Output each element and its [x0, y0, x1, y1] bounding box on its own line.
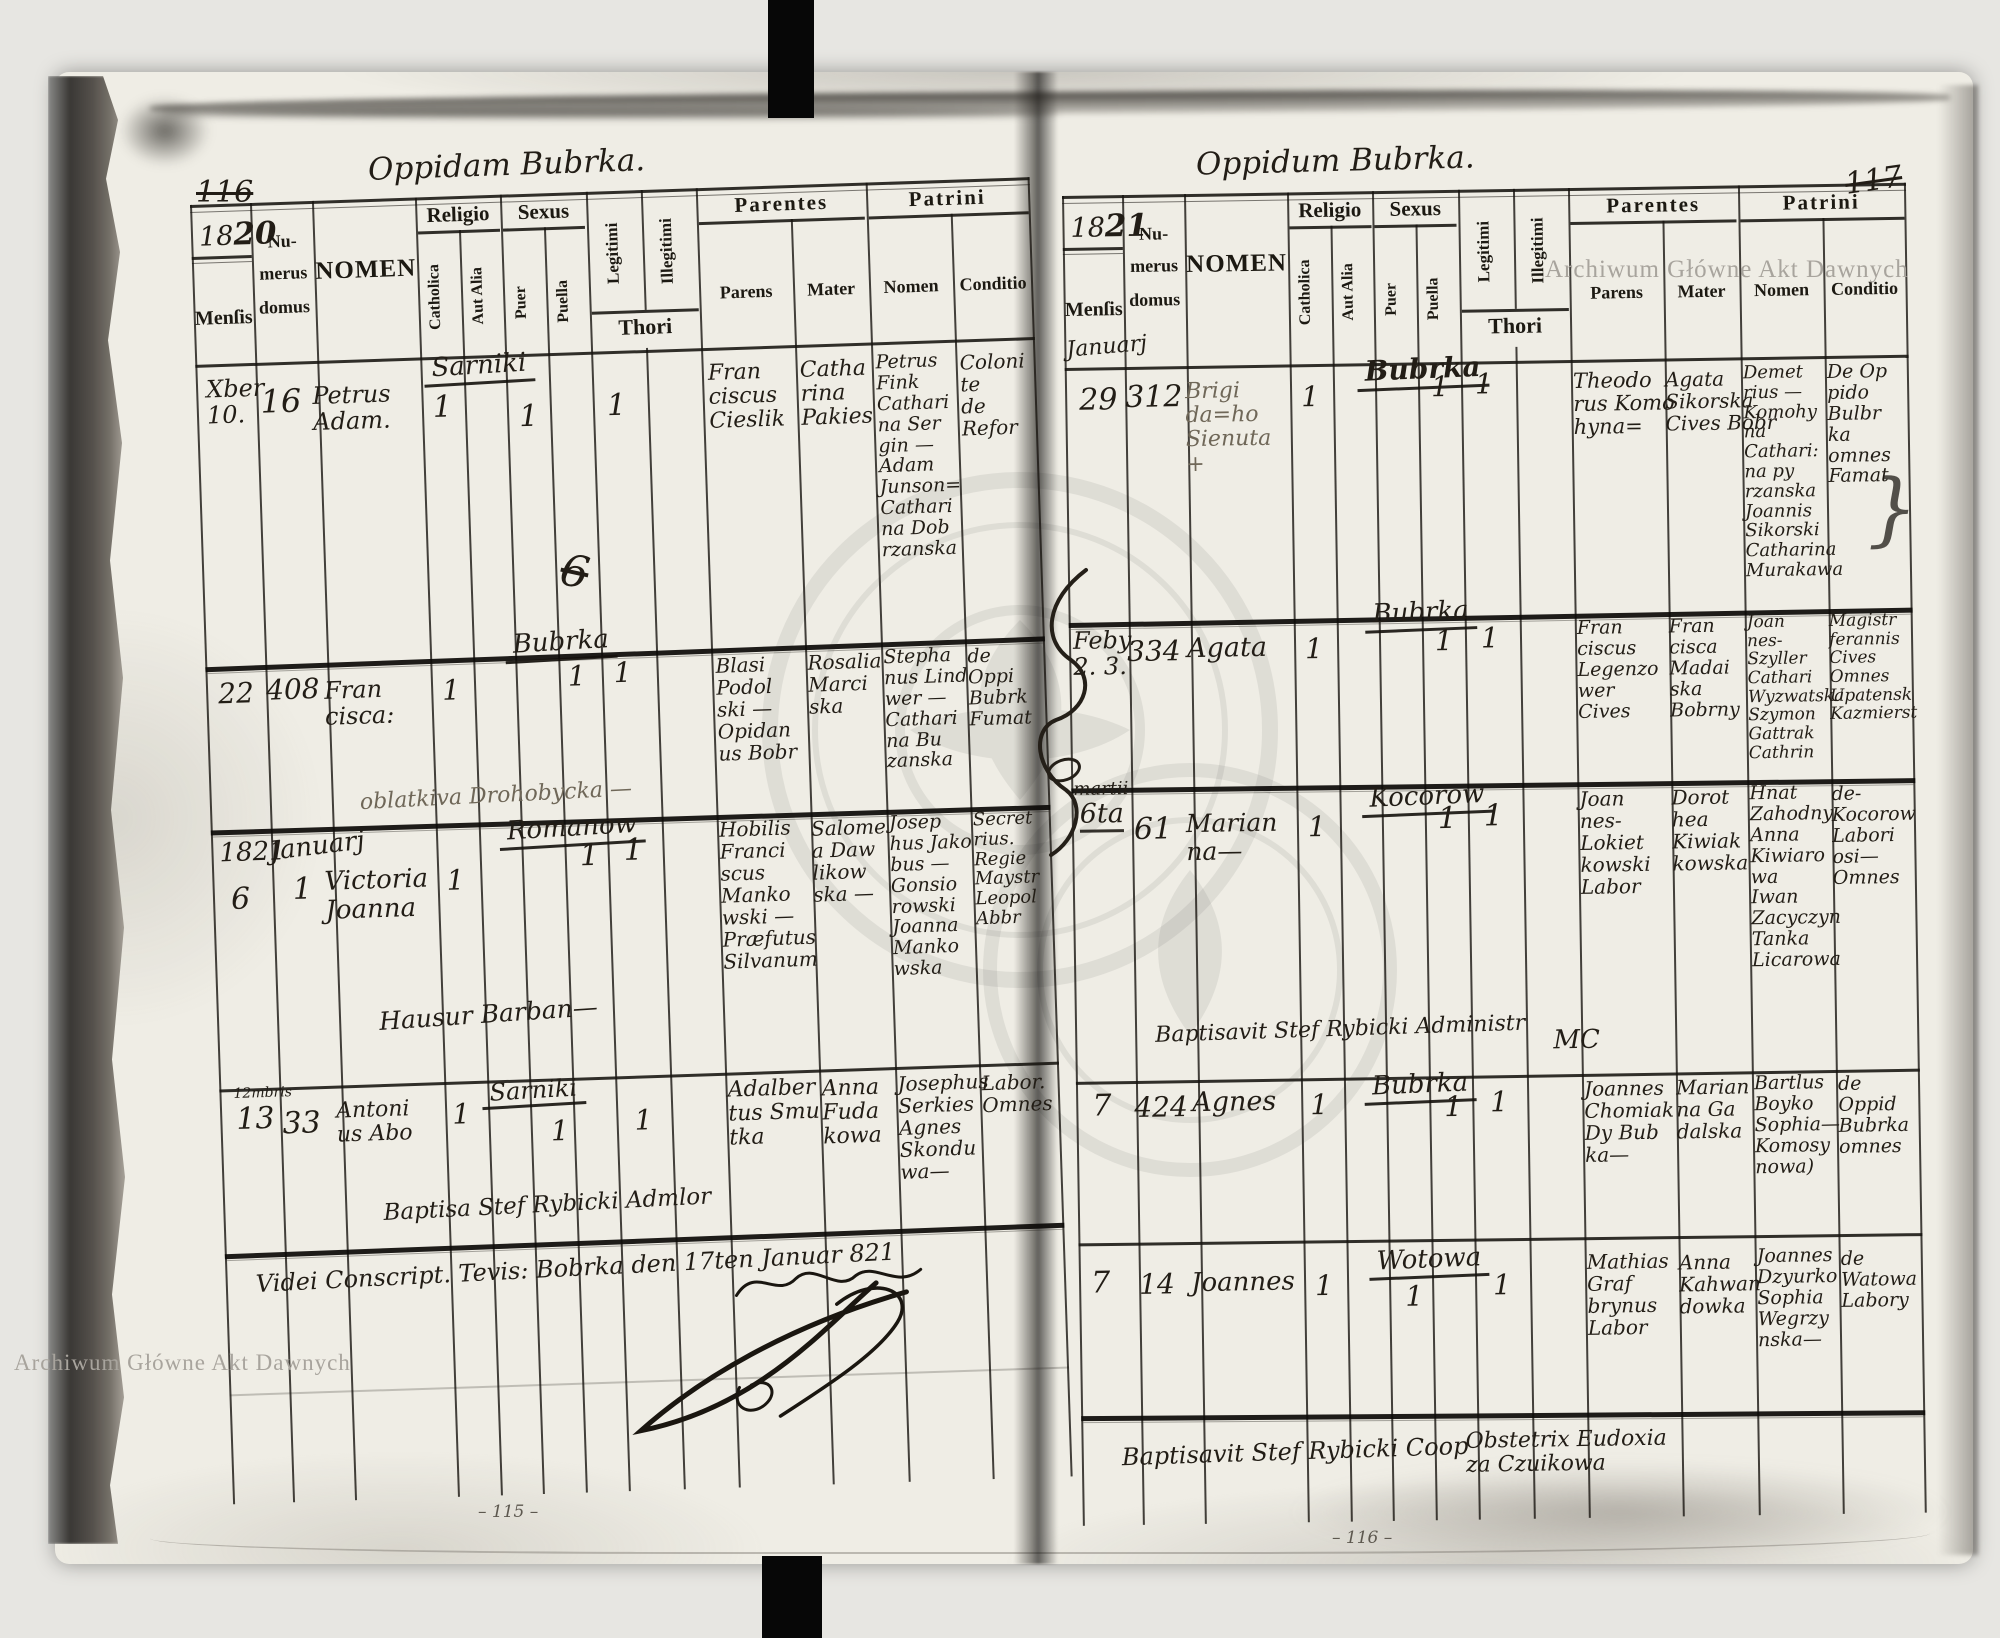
cell-parens: Mathias Graf brynus Labor — [1587, 1250, 1670, 1339]
cell-mater: Catha rina Pakies — [799, 357, 873, 432]
header-parens: Parens — [699, 281, 794, 302]
cell-conditio: Magistr ferannis Cives Omnes Upatensk Ka… — [1829, 611, 1918, 724]
right-bottom-page-number: – 116 – — [1332, 1528, 1392, 1548]
left-corner-page-number: 116 — [196, 176, 253, 209]
cell-conditio: de- Kocorow Labori osi— Omnes — [1831, 783, 1917, 889]
register-table-right: 1821 Menſis Nu- merus domus NOMEN Religi… — [1062, 183, 1927, 1526]
scanned-register-scene: Archiwum Główne Akt Dawnych Archiwum Głó… — [0, 0, 2000, 1638]
repository-watermark-top: Archiwum Główne Akt Dawnych — [1545, 256, 1909, 284]
place-note: Kocorow — [1361, 780, 1493, 818]
header-numerus-3: domus — [1124, 290, 1186, 309]
header-illegitimi: Illegitimi — [1528, 196, 1547, 304]
place-note: Wotowa — [1368, 1243, 1490, 1281]
header-puella: Puella — [554, 252, 573, 350]
cell-parens: Blasi Podol ski — Opidan us Bobr — [715, 652, 797, 765]
top-edge-smudge-2 — [160, 108, 1060, 118]
header-conditio: Conditio — [953, 273, 1034, 294]
cell-parens: Theodo rus Komo hyna= — [1573, 368, 1675, 439]
cell-legitimi-mark: 1 — [1484, 799, 1504, 832]
cell-sexus-mark: 1 — [550, 1116, 569, 1147]
cell-domus: 312 — [1125, 380, 1183, 414]
header-legitimi: Legitimi — [602, 199, 623, 308]
cell-sexus-mark: 1 — [519, 400, 539, 434]
rule-line-h — [192, 255, 252, 260]
header-legitimi: Legitimi — [1474, 197, 1493, 305]
cell-nomen: Fran cisca: — [324, 676, 395, 731]
cell-catholica-mark: 1 — [1301, 382, 1319, 413]
marginal-annotation: Hausur Barban— — [378, 993, 598, 1035]
cell-patrini-nomen: Joannes Dzyurko Sophia Wegrzy nska— — [1757, 1245, 1839, 1351]
cell-domus: 424 — [1134, 1092, 1188, 1124]
cell-patrini-nomen: Josep hus Jako bus — Gonsio rowski Joann… — [889, 810, 977, 980]
left-bottom-page-number: – 115 – — [478, 1502, 538, 1522]
cell-sexus-mark: 1 — [1431, 372, 1449, 403]
header-numerus-2: merus — [1123, 256, 1185, 275]
register-row: Xber 10. 16 Petrus Adam. 1 Sarniki 1 1 6… — [195, 337, 1045, 666]
header-sexus: Sexus — [1372, 198, 1458, 220]
cell-legitimi-mark: 1 — [634, 1105, 653, 1136]
register-row: 7 14 Joannes 1 Wotowa 1 1 Mathias Graf b… — [1078, 1232, 1925, 1420]
cell-parens: Fran ciscus Cieslik — [707, 359, 785, 434]
rule-line-v — [641, 190, 647, 310]
place-note: Bubrka — [1364, 596, 1477, 633]
cell-patrini-nomen: Bartlus Boyko Sophia— Komosy nowa) — [1754, 1072, 1841, 1178]
cell-sexus-mark: 1 — [1438, 802, 1458, 835]
header-numerus-2: merus — [252, 263, 315, 283]
cell-nomen: Antoni us Abo — [336, 1097, 413, 1148]
cell-legitimi-mark: 1 — [613, 658, 632, 689]
cell-catholica-mark: 1 — [442, 675, 461, 706]
cell-mensis: 22 — [218, 678, 255, 710]
year-printed: 18 — [199, 221, 234, 253]
obstetrix-annotation: Obstetrix Eudoxia za Czuikowa — [1465, 1427, 1667, 1479]
rule-line-h — [699, 217, 865, 226]
header-illegitimi: Illegitimi — [656, 197, 677, 306]
header-thori: Thori — [590, 314, 701, 340]
baptism-annotation: Baptisavit Stef Rybicki Administr — [1155, 1012, 1526, 1048]
cell-legitimi-mark: 1 — [606, 389, 626, 423]
cell-parens: Adalber tus Smu tka — [727, 1076, 821, 1152]
signature-flourish-2 — [725, 1249, 927, 1316]
header-catholica: Catholica — [425, 239, 445, 355]
header-nomen: NOMEN — [314, 256, 418, 284]
cell-nomen: Joannes — [1191, 1267, 1295, 1297]
cell-sexus-mark: 1 — [1405, 1281, 1423, 1312]
cell-mensis: 7 — [1092, 1089, 1112, 1122]
cell-sexus-mark: 1 — [567, 661, 586, 692]
cell-nomen: Petrus Adam. — [312, 380, 392, 435]
cell-parens: Fran ciscus Legenzo wer Cives — [1577, 617, 1660, 723]
cell-conditio: de Oppid Bubrka omnes — [1838, 1073, 1910, 1158]
cell-nomen: Agata — [1187, 633, 1267, 664]
place-note: Bubrka — [504, 625, 618, 664]
rule-line-h — [192, 261, 252, 264]
rule-line-h — [1374, 224, 1456, 228]
header-religio: Religio — [415, 203, 501, 227]
header-puer: Puer — [1383, 251, 1401, 349]
header-mensis: Menſis — [193, 307, 254, 329]
cell-mensis: 29 — [1079, 383, 1118, 417]
header-patrini-nomen: Nomen — [869, 276, 954, 297]
cell-nomen: Victoria Joanna — [324, 864, 429, 925]
cell-conditio: Coloni te de Refor — [959, 349, 1027, 439]
marginal-annotation: oblatkiva Drohobycka — — [359, 777, 632, 815]
cell-legitimi-mark: 1 — [1490, 1087, 1508, 1118]
cell-domus: 1 — [292, 872, 312, 906]
cell-nomen: Brigi da=ho Sienuta + — [1185, 379, 1272, 477]
crossed-out-note: 6 — [556, 546, 594, 599]
cell-catholica-mark: 1 — [1305, 634, 1323, 665]
baptism-footer-annotation: Baptisavit Stef Rybicki Coop — [1121, 1433, 1468, 1471]
rule-line-h — [1570, 219, 1736, 225]
cell-mater: Dorot hea Kiwiak kowska — [1671, 785, 1748, 874]
right-corner-page-number: 117 — [1843, 160, 1904, 201]
cell-small-note: 12mbris — [233, 1085, 292, 1102]
header-aut-alia: Aut Alia — [468, 237, 488, 353]
rule-line-h — [869, 211, 1029, 219]
header-religio: Religio — [1287, 199, 1372, 221]
register-row: martii 6ta 61 Marian na— 1 Kocorow 1 1 J… — [1071, 777, 1919, 1082]
cell-catholica-mark: 1 — [432, 390, 452, 424]
place-note: Sarniki — [481, 1074, 586, 1110]
cell-parens: Joannes Chomiak Dy Bub ka— — [1584, 1077, 1675, 1166]
cell-mensis: 7 — [1091, 1266, 1111, 1299]
place-note: Sarniki — [423, 348, 536, 387]
cell-parens: Joan nes- Lokiet kowski Labor — [1579, 787, 1651, 898]
register-table-left: 1820 Menſis Nu- merus domus NOMEN Religi… — [190, 177, 1073, 1504]
place-note: Bubrka — [1356, 352, 1489, 392]
cell-parens: Hobilis Franci scus Manko wski — Præfutu… — [719, 816, 819, 973]
register-row: 29 312 Brigi da=ho Sienuta + 1 Bubrka 1 … — [1065, 355, 1913, 622]
cell-conditio: Labor. Omnes — [981, 1070, 1053, 1116]
margin-scribble — [1026, 560, 1106, 860]
header-puella: Puella — [1425, 250, 1443, 348]
cell-catholica-mark: 1 — [1310, 1090, 1328, 1121]
rule-line-h — [1063, 253, 1123, 255]
header-numerus-1: Nu- — [1122, 224, 1184, 243]
cell-domus: 61 — [1134, 812, 1173, 846]
header-mater: Mater — [1663, 281, 1739, 300]
cell-legitimi-mark: 1 — [1493, 1270, 1511, 1301]
header-numerus-1: Nu- — [251, 231, 314, 251]
cell-catholica-mark: 1 — [1308, 812, 1326, 843]
header-mater: Mater — [793, 279, 870, 300]
cell-mater: Marian na Ga dalska — [1676, 1075, 1750, 1142]
header-catholica: Catholica — [1297, 234, 1315, 350]
register-row: Bubrka 22 408 Fran cisca: 1 1 1 Blasi Po… — [205, 638, 1050, 832]
header-parentes: Parentes — [696, 191, 867, 218]
header-mensis: Menſis — [1064, 299, 1124, 320]
spine-marker-strip-top — [768, 0, 814, 118]
header-nomen: NOMEN — [1185, 250, 1288, 277]
book-right-rim-shadow — [1938, 85, 1978, 1555]
register-row: Feby 2. 3. 334 Agata 1 Bubrka 1 1 Fran c… — [1069, 609, 1916, 790]
cell-legitimi-mark: 1 — [623, 833, 643, 867]
cell-patrini-nomen: Petrus Fink Cathari na Ser gin — Adam Ju… — [875, 350, 963, 561]
cell-patrini-nomen: Stepha nus Lind wer — Cathari na Bu zans… — [883, 645, 970, 773]
register-row: 12mbris 13 33 Antoni us Abo 1 Sarniki 1 … — [219, 1062, 1064, 1253]
conditio-bracket: } — [1866, 465, 1918, 554]
cell-patrini-nomen: Josephus Serkies Agnes Skondu wa— — [897, 1070, 992, 1183]
cell-domus: 33 — [282, 1106, 321, 1140]
cell-mensis: 13 — [236, 1102, 275, 1136]
cell-legitimi-mark: 1 — [1481, 623, 1499, 654]
cell-mater: Salome a Daw likow ska — — [811, 815, 889, 905]
register-row: 7 424 Agnes 1 Bubrka 1 1 Joannes Chomiak… — [1076, 1069, 1922, 1245]
cell-catholica-mark: 1 — [446, 865, 465, 896]
month-note-januarj: Januarj — [1065, 332, 1148, 363]
cell-sexus-mark: 1 — [1435, 626, 1453, 657]
baptism-annotation: Baptisa Stef Rybicki Admlor — [383, 1184, 712, 1226]
header-thori: Thori — [1460, 314, 1570, 338]
header-parentes: Parentes — [1568, 193, 1738, 217]
header-aut-alia: Aut Alia — [1340, 233, 1358, 349]
cell-mensis: 6 — [231, 882, 251, 916]
header-puer: Puer — [512, 254, 531, 352]
cell-conditio: de Oppi Bubrk Fumat — [967, 644, 1032, 730]
header-sexus: Sexus — [500, 200, 587, 224]
rule-line-v — [1513, 189, 1517, 309]
header-parens: Parens — [1569, 283, 1663, 302]
header-patrini: Patrini — [866, 185, 1029, 211]
year-printed: 18 — [1070, 212, 1105, 244]
cell-domus: 14 — [1139, 1269, 1175, 1300]
cell-catholica-mark: 1 — [1315, 1271, 1333, 1302]
top-left-corner-stain — [120, 96, 210, 166]
rule-line-h — [1063, 247, 1123, 251]
spine-marker-strip-bottom — [762, 1556, 822, 1638]
cell-domus: 16 — [260, 383, 302, 420]
cell-mensis: Xber 10. — [206, 375, 266, 430]
cell-nomen: Agnes — [1192, 1087, 1276, 1118]
cell-sexus-mark: 1 — [1444, 1092, 1462, 1123]
cell-nomen: Marian na— — [1186, 809, 1278, 865]
header-numerus-3: domus — [253, 297, 316, 317]
cell-mater: Anna Kahwan dowka — [1679, 1250, 1762, 1317]
cell-domus: 334 — [1127, 636, 1181, 668]
cell-mater: Anna Fuda kowa — [821, 1076, 882, 1150]
cell-mater: Rosalia Marci ska — [807, 649, 883, 717]
register-row: 1821 Januarj 6 1 Victoria Joanna 1 Roman… — [211, 804, 1059, 1090]
cell-legitimi-mark: 1 — [1475, 369, 1493, 400]
rule-line-h — [1290, 225, 1372, 229]
repository-watermark-bottom: Archiwum Główne Akt Dawnych — [14, 1350, 351, 1376]
cell-mater: Fran cisca Madai ska Bobrny — [1669, 615, 1740, 721]
cell-catholica-mark: 1 — [452, 1099, 471, 1130]
cell-domus: 408 — [266, 674, 320, 707]
cell-patrini-nomen: Hnat Zahodny Anna Kiwiaro wa Iwan Zacycz… — [1749, 782, 1841, 971]
baptism-annotation-initials: MC — [1553, 1026, 1600, 1055]
cell-sexus-mark: 1 — [579, 839, 599, 873]
right-page-title: Oppidum Bubrka. — [1196, 140, 1475, 181]
cell-conditio: de Watowa Labory — [1841, 1248, 1918, 1312]
cell-month-note: Januarj — [268, 827, 366, 867]
